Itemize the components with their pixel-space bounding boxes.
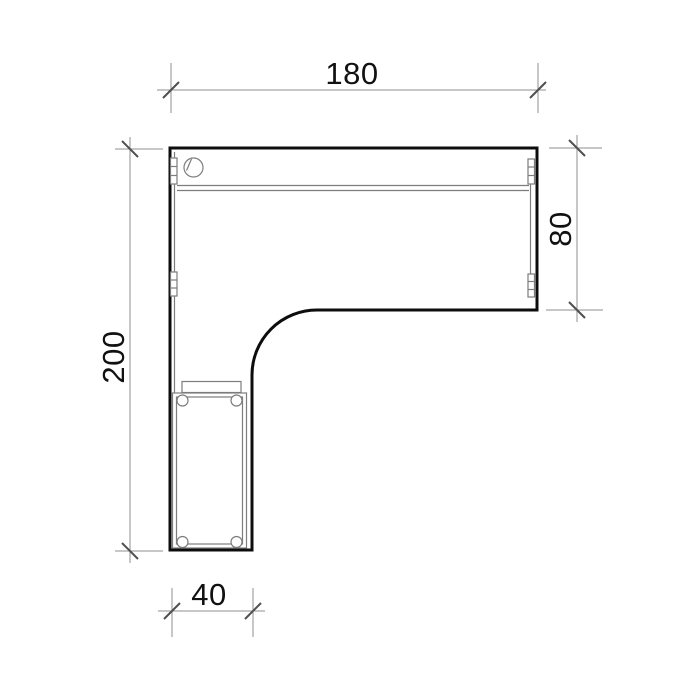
caster-wheel-icon <box>231 537 242 548</box>
mobile-pedestal <box>173 382 247 549</box>
dimension-label-right: 80 <box>543 211 578 246</box>
caster-wheel-icon <box>231 395 242 406</box>
pedestal-body-outer <box>173 393 247 548</box>
caster-wheel-icon <box>177 537 188 548</box>
dimension-top-width: 180 <box>157 56 546 113</box>
dimension-right-depth: 80 <box>543 135 603 322</box>
dimension-label-left: 200 <box>96 330 131 383</box>
desk-plan-drawing: 180 80 200 40 <box>0 0 700 700</box>
dimension-label-top: 180 <box>325 56 378 91</box>
connector-bracket-icon <box>528 274 535 297</box>
drawing-canvas: 180 80 200 40 <box>0 0 700 700</box>
connector-bracket-icon <box>528 159 535 184</box>
caster-wheel-icon <box>177 395 188 406</box>
dimension-label-bottom: 40 <box>191 577 226 612</box>
pedestal-handle <box>182 382 241 393</box>
connector-bracket-icon <box>171 272 178 296</box>
connector-bracket-icon <box>171 158 178 184</box>
dimension-bottom-width: 40 <box>158 577 265 637</box>
dimension-left-depth: 200 <box>96 137 163 563</box>
